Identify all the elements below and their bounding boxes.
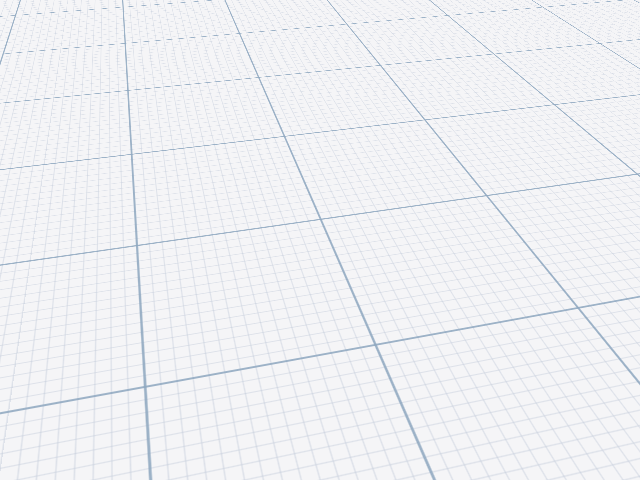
3d-viewport[interactable] [0, 0, 640, 480]
door-handle-keyhole [450, 243, 453, 246]
door-handle[interactable] [447, 240, 453, 246]
room-scene [0, 0, 640, 480]
